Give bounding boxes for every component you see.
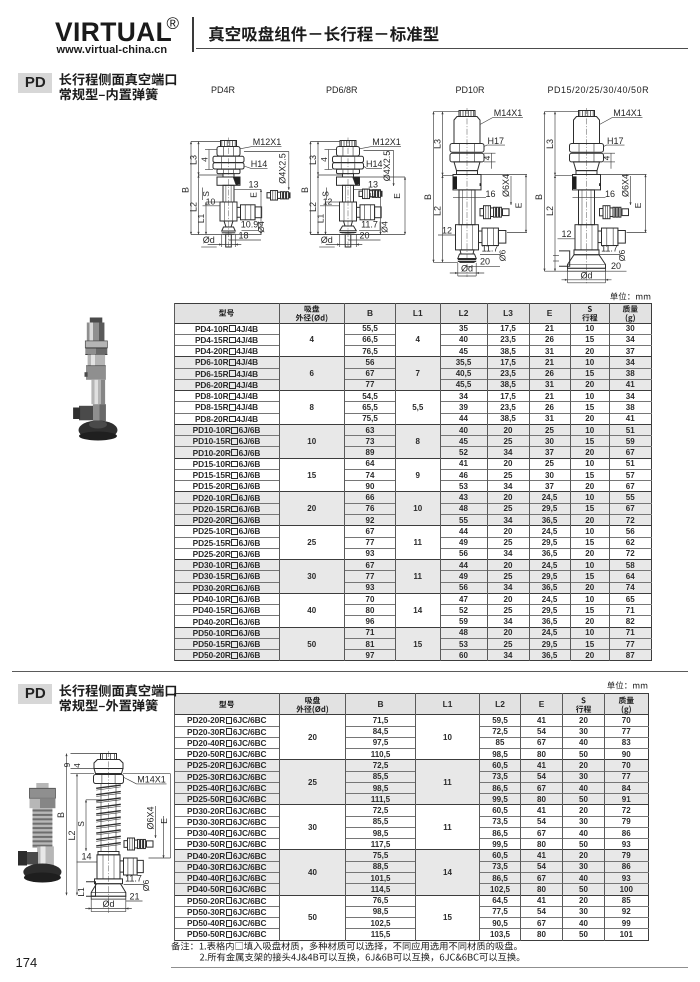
svg-text:12: 12 (442, 225, 452, 235)
svg-text:Ød: Ød (461, 264, 473, 274)
svg-text:H17: H17 (607, 136, 624, 146)
svg-text:M12X1: M12X1 (372, 137, 401, 147)
svg-text:Ø6X4: Ø6X4 (501, 174, 511, 197)
svg-text:L2: L2 (308, 202, 318, 212)
svg-text:E: E (159, 818, 169, 824)
svg-text:12: 12 (323, 196, 333, 206)
svg-text:E: E (514, 202, 524, 208)
svg-text:11.7: 11.7 (125, 874, 142, 884)
svg-text:11.7: 11.7 (601, 244, 618, 254)
svg-text:Ø4X2.5: Ø4X2.5 (278, 153, 288, 184)
svg-text:M12X1: M12X1 (253, 137, 282, 147)
svg-text:Ød: Ød (203, 235, 215, 245)
svg-text:L3: L3 (308, 155, 318, 165)
svg-text:L3: L3 (545, 139, 555, 149)
svg-text:Ød: Ød (580, 270, 592, 280)
svg-text:E: E (249, 192, 259, 198)
svg-text:H14: H14 (366, 159, 383, 169)
svg-text:L3: L3 (189, 155, 199, 165)
svg-text:B: B (181, 187, 191, 193)
svg-text:21: 21 (129, 891, 139, 901)
svg-text:Ød: Ød (321, 235, 333, 245)
svg-text:4: 4 (603, 155, 612, 160)
svg-text:12: 12 (561, 229, 571, 239)
svg-text:4: 4 (200, 157, 210, 162)
svg-text:L1: L1 (76, 887, 86, 897)
svg-text:H17: H17 (488, 136, 505, 146)
svg-text:13: 13 (368, 180, 378, 190)
svg-text:9: 9 (62, 762, 72, 767)
svg-text:B: B (300, 187, 310, 193)
svg-text:Ø4: Ø4 (256, 221, 266, 233)
svg-text:L2: L2 (545, 206, 555, 216)
svg-text:Ø6: Ø6 (498, 250, 508, 262)
svg-text:20: 20 (359, 230, 369, 240)
svg-text:4: 4 (483, 155, 492, 160)
svg-text:11.7: 11.7 (482, 244, 499, 254)
svg-text:M14X1: M14X1 (613, 108, 642, 118)
svg-text:Ød: Ød (102, 899, 114, 909)
svg-text:16: 16 (485, 189, 495, 199)
svg-text:B: B (56, 812, 66, 818)
svg-text:20: 20 (611, 261, 621, 271)
svg-text:L2: L2 (433, 206, 443, 216)
svg-text:11.7: 11.7 (361, 219, 378, 229)
svg-text:B: B (423, 194, 433, 200)
svg-text:L3: L3 (433, 139, 443, 149)
svg-text:16: 16 (605, 189, 615, 199)
svg-text:13: 13 (248, 180, 258, 190)
svg-text:M14X1: M14X1 (137, 775, 166, 785)
svg-text:Ø6: Ø6 (617, 250, 627, 262)
svg-text:L2: L2 (67, 830, 77, 840)
svg-text:Ø4: Ø4 (380, 221, 390, 233)
svg-text:H14: H14 (251, 159, 268, 169)
svg-text:4: 4 (72, 763, 82, 768)
svg-text:S: S (76, 821, 86, 827)
svg-text:Ø6: Ø6 (141, 880, 151, 892)
svg-text:14: 14 (81, 852, 91, 862)
svg-text:M14X1: M14X1 (494, 108, 523, 118)
svg-text:E: E (392, 193, 402, 199)
svg-text:L1: L1 (196, 214, 206, 224)
svg-text:E: E (633, 202, 643, 208)
svg-text:L2: L2 (189, 202, 199, 212)
svg-text:Ø6X4: Ø6X4 (621, 174, 631, 197)
svg-text:10: 10 (206, 196, 216, 206)
svg-text:20: 20 (480, 256, 490, 266)
svg-text:18: 18 (238, 230, 248, 240)
svg-text:Ø6X4: Ø6X4 (146, 806, 156, 829)
svg-text:4: 4 (319, 157, 329, 162)
svg-text:B: B (534, 194, 544, 200)
svg-text:L1: L1 (316, 214, 326, 224)
